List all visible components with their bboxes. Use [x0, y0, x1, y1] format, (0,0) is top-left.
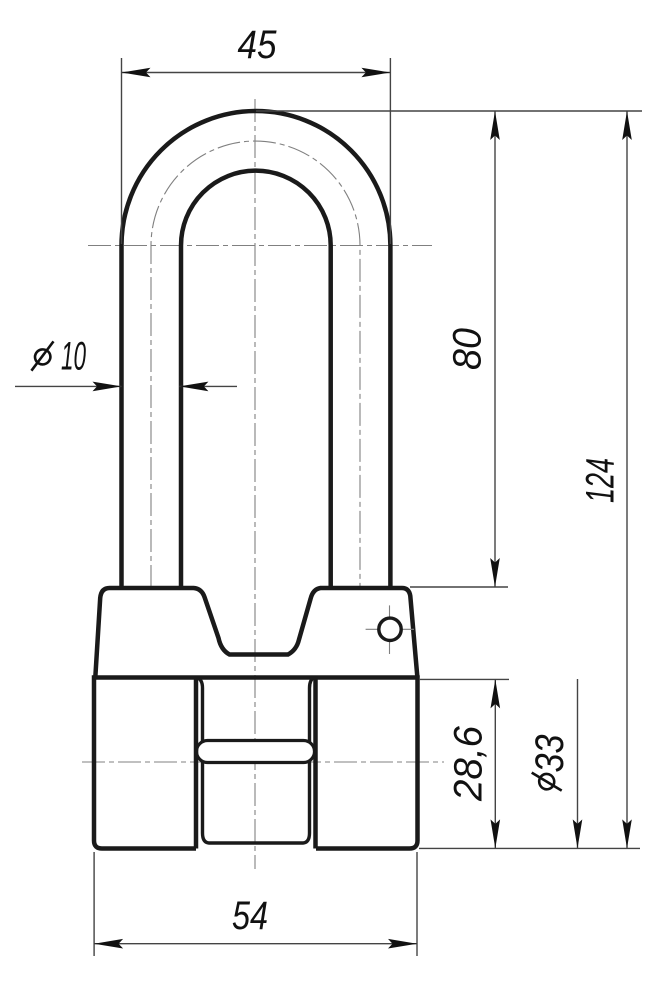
svg-text:80: 80: [446, 328, 490, 370]
svg-text:54: 54: [232, 894, 268, 938]
svg-text:124: 124: [579, 458, 623, 503]
svg-text:10: 10: [61, 335, 86, 379]
svg-text:45: 45: [238, 23, 278, 67]
svg-text:33: 33: [528, 735, 572, 773]
svg-text:28,6: 28,6: [447, 725, 491, 802]
